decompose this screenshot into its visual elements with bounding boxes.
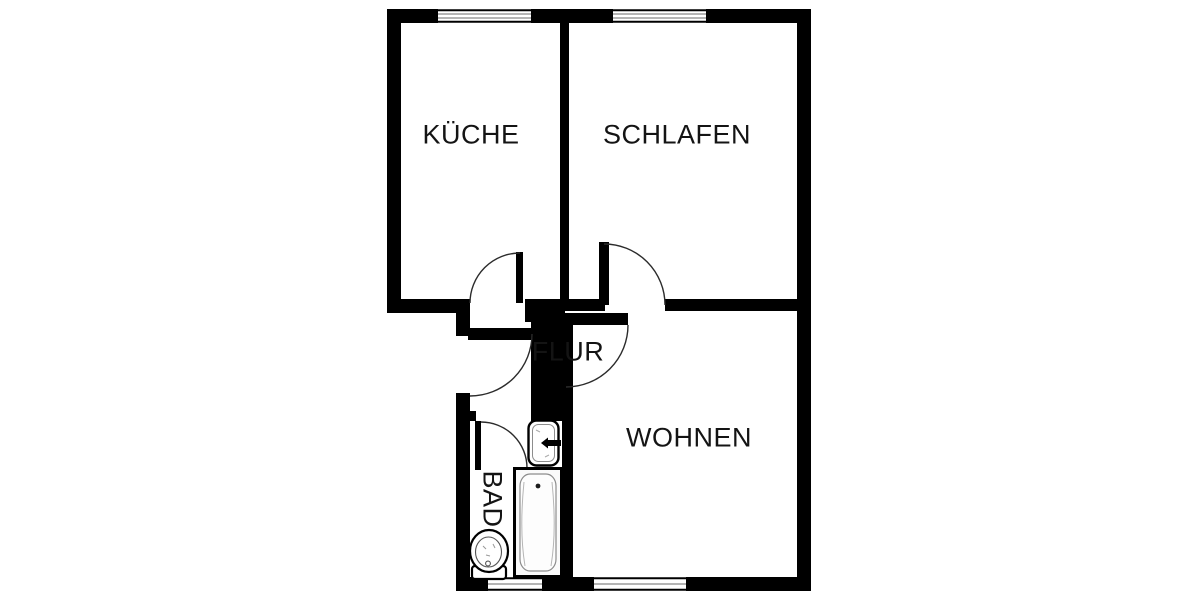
wall-kueche-schlafen-divider: [560, 23, 569, 303]
room-label-wohnen: WOHNEN: [626, 423, 752, 454]
wohnen-window-glyph: [594, 577, 686, 591]
toilet-icon: [470, 530, 508, 579]
wall-right: [797, 9, 811, 591]
bathtub-drain: [536, 484, 541, 489]
wall-bad-door-step: [468, 411, 476, 421]
wall-schlafen-south-right: [665, 299, 797, 311]
bad-door-arc: [481, 422, 527, 468]
wall-left-lower: [456, 393, 470, 577]
wall-kueche-south: [387, 299, 470, 313]
schlafen-window-glyph: [613, 9, 706, 23]
wall-wohnen-door-bar: [565, 313, 628, 325]
room-label-bad: BAD: [477, 470, 508, 527]
schlafen-door-leaf: [599, 242, 609, 305]
bathtub-icon: [515, 469, 562, 577]
schlafen-door-arc: [604, 244, 665, 305]
room-label-kueche: KÜCHE: [422, 120, 519, 151]
floor-plan-drawing: [0, 0, 1200, 600]
floor-plan: KÜCHE SCHLAFEN FLUR WOHNEN BAD: [0, 0, 1200, 600]
washbasin-icon: [529, 421, 562, 466]
wall-left-upper: [387, 9, 401, 313]
room-label-flur: FLUR: [532, 337, 605, 368]
washbasin-faucet: [547, 440, 561, 446]
kueche-door-leaf: [516, 252, 523, 303]
bad-door-leaf: [475, 421, 481, 470]
entrance-door-arc: [470, 334, 532, 396]
room-label-schlafen: SCHLAFEN: [603, 120, 751, 151]
wall-schlafen-south-left: [560, 299, 605, 311]
kueche-door-arc: [470, 253, 520, 303]
kueche-window-glyph: [438, 9, 531, 23]
wall-entry-jog: [456, 311, 470, 336]
entrance-door-leaf: [468, 328, 533, 340]
